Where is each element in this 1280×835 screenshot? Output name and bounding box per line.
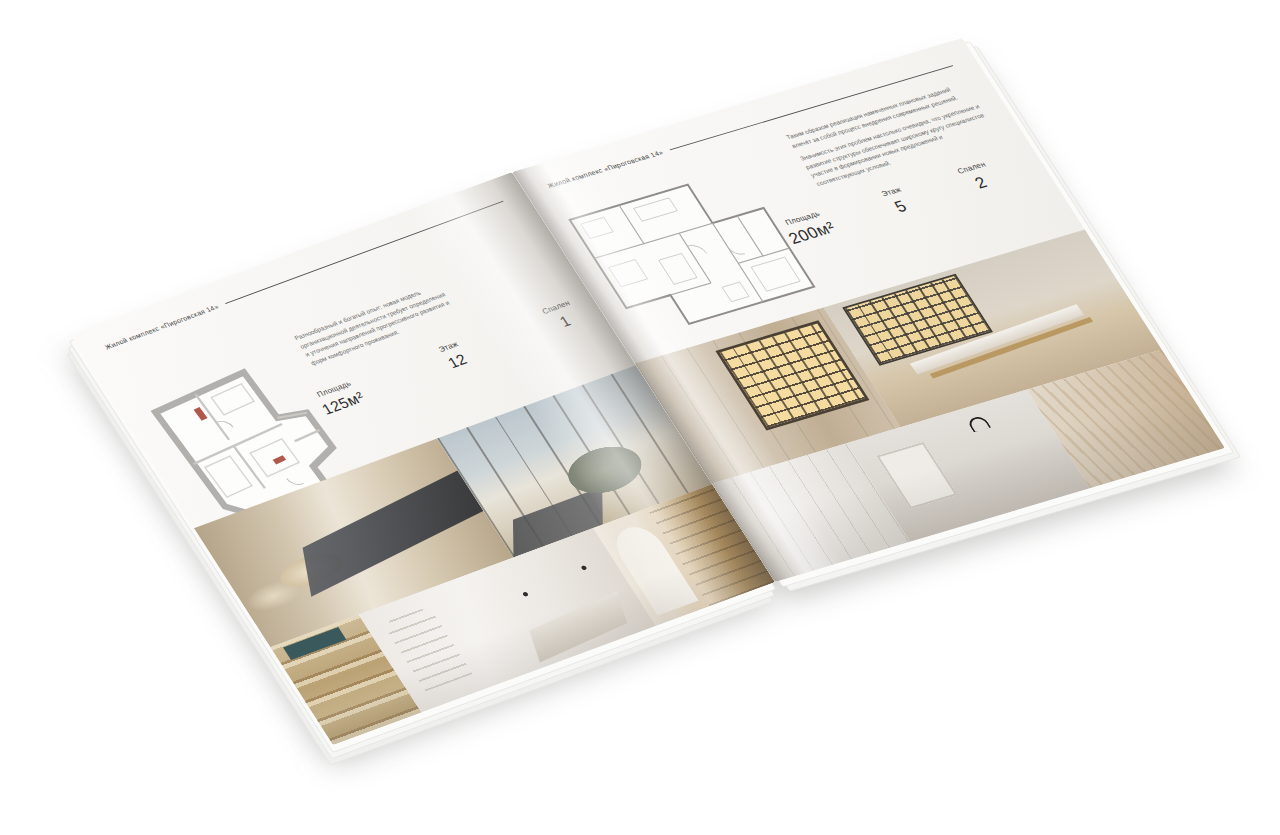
left-page-header: Жилой комплекс «Пироговская 14»	[103, 197, 505, 351]
spec-floor-value: 12	[444, 350, 472, 372]
spec-bedrooms: Спален 2	[955, 160, 1000, 196]
spec-floor: Этаж 12	[437, 339, 472, 372]
spec-floor-label: Этаж	[879, 185, 902, 198]
spec-bedrooms: Спален 1	[540, 298, 583, 334]
left-page-title: Жилой комплекс «Пироговская 14»	[103, 303, 220, 352]
spec-floor-value: 5	[887, 196, 916, 218]
header-rule	[225, 201, 504, 304]
spec-floor: Этаж 5	[879, 185, 915, 218]
brochure-mockup: Жилой комплекс «Пироговская 14» Разнообр…	[0, 0, 1280, 835]
spec-bedrooms-value: 2	[963, 171, 1001, 196]
